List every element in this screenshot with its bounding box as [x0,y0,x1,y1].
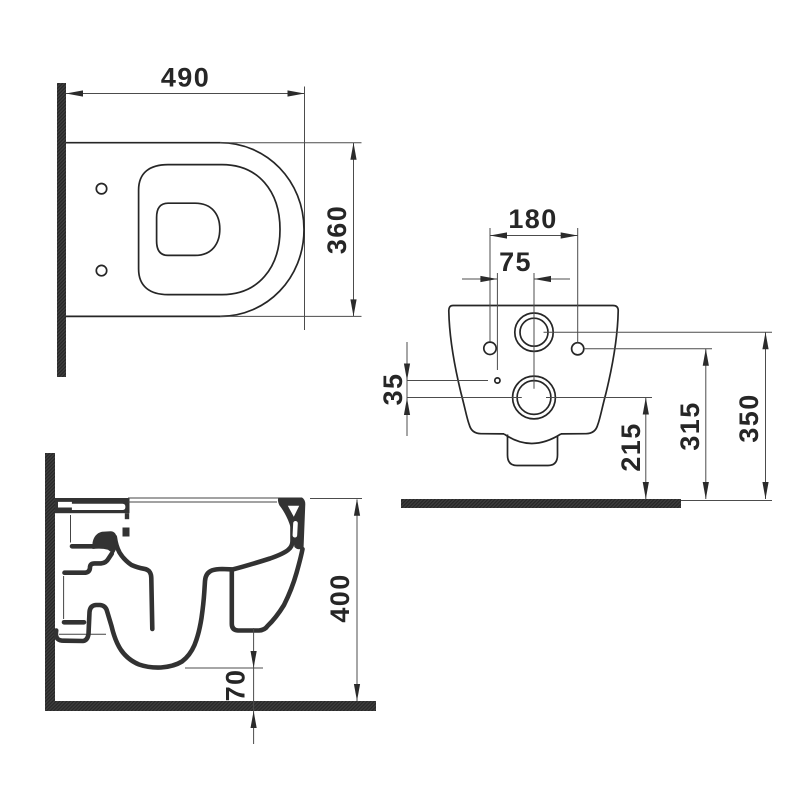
svg-text:360: 360 [322,205,352,254]
svg-text:35: 35 [378,373,408,406]
svg-text:315: 315 [675,401,705,450]
svg-text:400: 400 [325,573,355,622]
svg-text:490: 490 [161,63,210,93]
svg-text:215: 215 [616,422,646,471]
svg-text:180: 180 [508,204,557,234]
svg-text:70: 70 [221,669,251,702]
svg-text:350: 350 [734,393,764,442]
svg-text:75: 75 [499,247,532,277]
